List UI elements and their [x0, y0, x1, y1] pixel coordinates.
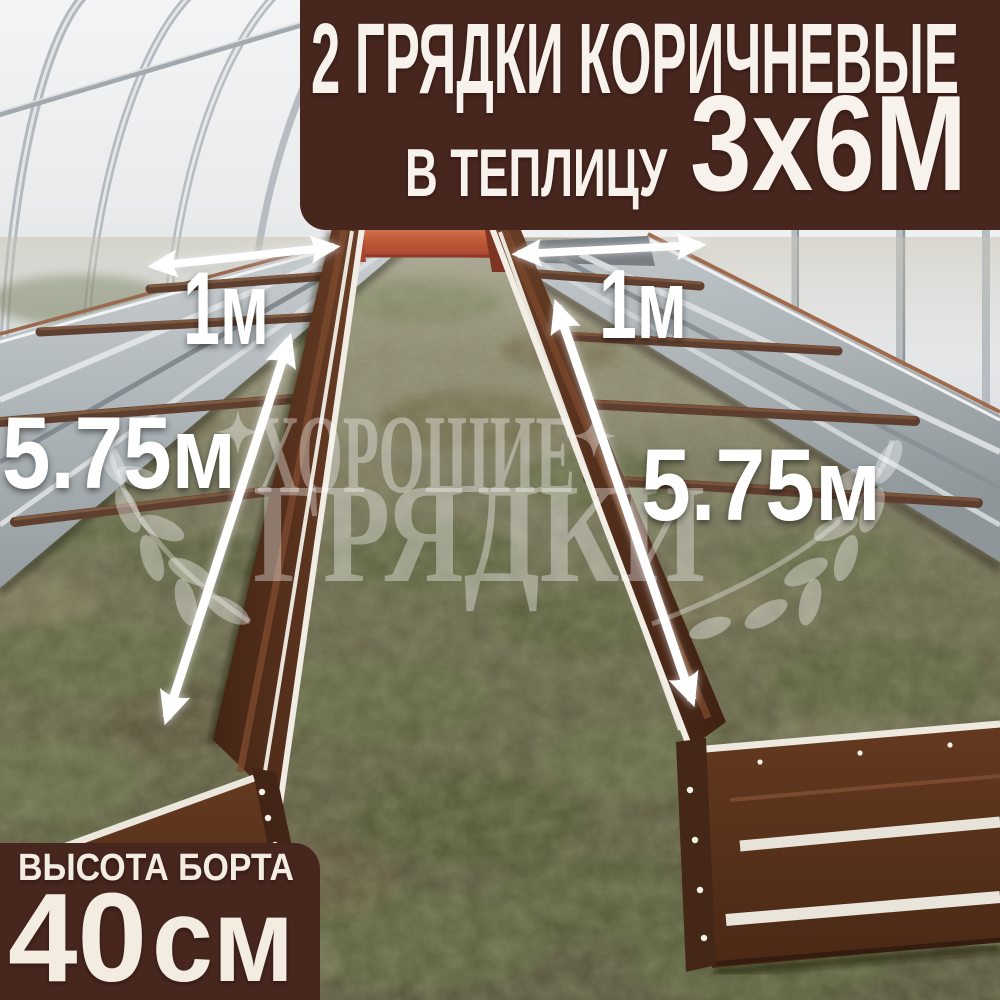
promo-banner: 2 ГРЯДКИ КОРИЧНЕВЫЕ В ТЕПЛИЦУ 3х6М — [300, 0, 1000, 230]
banner-size-value: 3х6М — [690, 67, 967, 219]
badge-value: 40 — [8, 867, 147, 1000]
banner-line2-prefix: В ТЕПЛИЦУ — [405, 135, 667, 211]
product-image: ХОРОШИЕ ГРЯДКИ 1м 1м 5.75м 5.75м 2 ГРЯДК… — [0, 0, 1000, 1000]
height-badge: ВЫСОТА БОРТА 40 см — [0, 843, 320, 1000]
photo-scene: ХОРОШИЕ ГРЯДКИ 1м 1м 5.75м 5.75м 2 ГРЯДК… — [0, 0, 1000, 1000]
right-length-label: 5.75м — [641, 428, 881, 542]
badge-unit: см — [152, 873, 294, 1000]
left-width-label: 1м — [183, 251, 269, 367]
right-width-label: 1м — [599, 249, 687, 359]
left-length-label: 5.75м — [2, 396, 236, 510]
